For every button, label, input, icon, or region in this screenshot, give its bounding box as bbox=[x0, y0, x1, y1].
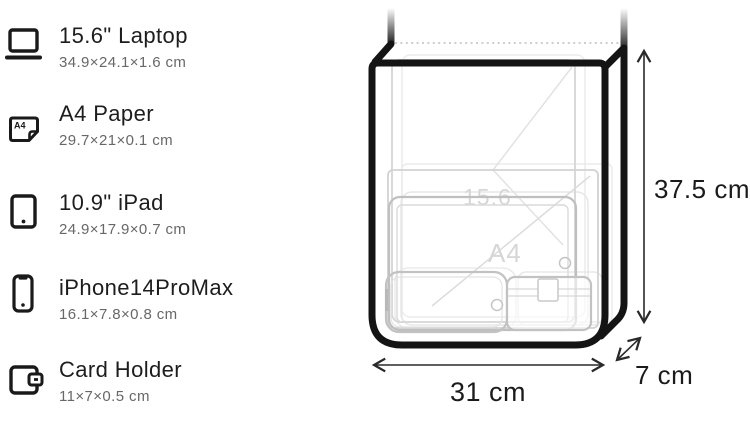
ghost-paper-label: A4 bbox=[488, 238, 522, 268]
depth-arrow bbox=[617, 338, 640, 360]
height-dimension-label: 37.5 cm bbox=[654, 174, 750, 204]
a4-paper-icon: A4 bbox=[8, 116, 40, 143]
item-dimensions: 11×7×0.5 cm bbox=[59, 388, 182, 406]
ipad-icon bbox=[10, 194, 37, 229]
item-dimensions: 16.1×7.8×0.8 cm bbox=[59, 306, 233, 324]
width-dimension-label: 31 cm bbox=[450, 377, 526, 407]
bag-size-infographic: 15.6" Laptop 34.9×24.1×1.6 cm A4 A4 Pape… bbox=[0, 0, 750, 426]
item-dimensions: 34.9×24.1×1.6 cm bbox=[59, 54, 188, 72]
laptop-icon bbox=[5, 27, 43, 63]
depth-dimension-label: 7 cm bbox=[635, 360, 693, 390]
iphone-icon bbox=[12, 274, 34, 313]
list-item-iphone: iPhone14ProMax 16.1×7.8×0.8 cm bbox=[59, 275, 233, 324]
item-title: A4 Paper bbox=[59, 101, 173, 126]
item-title: Card Holder bbox=[59, 357, 182, 382]
item-title: 15.6" Laptop bbox=[59, 23, 188, 48]
card-holder-icon bbox=[8, 362, 45, 397]
item-title: iPhone14ProMax bbox=[59, 275, 233, 300]
item-dimensions: 29.7×21×0.1 cm bbox=[59, 132, 173, 150]
a4-icon-label: A4 bbox=[14, 121, 26, 131]
list-item-ipad: 10.9" iPad 24.9×17.9×0.7 cm bbox=[59, 190, 186, 239]
item-title: 10.9" iPad bbox=[59, 190, 186, 215]
list-item-a4-paper: A4 Paper 29.7×21×0.1 cm bbox=[59, 101, 173, 150]
list-item-card-holder: Card Holder 11×7×0.5 cm bbox=[59, 357, 182, 406]
ghost-card-holder bbox=[507, 277, 591, 330]
list-item-laptop: 15.6" Laptop 34.9×24.1×1.6 cm bbox=[59, 23, 188, 72]
item-dimensions: 24.9×17.9×0.7 cm bbox=[59, 221, 186, 239]
bag-dimension-diagram: 15.6 A4 bbox=[350, 0, 750, 426]
